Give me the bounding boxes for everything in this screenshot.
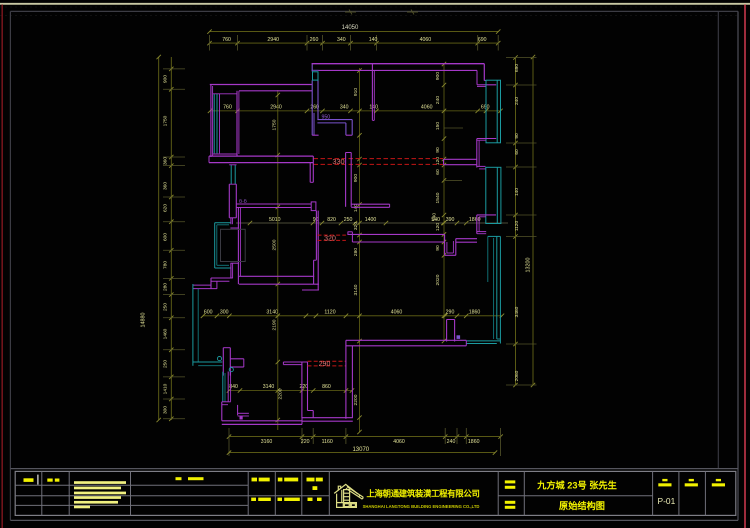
svg-text:240: 240 bbox=[447, 439, 456, 445]
svg-text:140: 140 bbox=[514, 188, 520, 196]
svg-text:3460: 3460 bbox=[514, 306, 520, 317]
svg-text:SHANGHAI LANGTONG BUILDING ENG: SHANGHAI LANGTONG BUILDING ENGINEERING C… bbox=[363, 504, 480, 509]
svg-text:上海朝通建筑装潢工程有限公司: 上海朝通建筑装潢工程有限公司 bbox=[366, 488, 479, 498]
svg-text:60: 60 bbox=[514, 149, 520, 155]
svg-text:2200: 2200 bbox=[278, 388, 284, 399]
svg-text:690: 690 bbox=[514, 64, 520, 72]
svg-text:340: 340 bbox=[340, 105, 349, 111]
svg-text:1460: 1460 bbox=[163, 328, 169, 339]
svg-text:690: 690 bbox=[478, 37, 487, 43]
svg-text:2190: 2190 bbox=[271, 319, 277, 330]
svg-text:390: 390 bbox=[446, 217, 455, 223]
svg-text:360: 360 bbox=[163, 182, 169, 190]
svg-text:280: 280 bbox=[353, 248, 359, 256]
svg-text:4060: 4060 bbox=[393, 439, 405, 445]
svg-text:90: 90 bbox=[435, 147, 441, 153]
svg-text:1860: 1860 bbox=[468, 439, 480, 445]
svg-text:290: 290 bbox=[319, 361, 331, 368]
svg-text:原始结构图: 原始结构图 bbox=[559, 500, 605, 511]
svg-text:240: 240 bbox=[514, 97, 520, 105]
svg-text:5010: 5010 bbox=[269, 217, 281, 223]
svg-text:4060: 4060 bbox=[421, 105, 433, 111]
svg-text:260: 260 bbox=[310, 37, 319, 43]
svg-text:4060: 4060 bbox=[420, 37, 432, 43]
svg-text:3140: 3140 bbox=[266, 309, 278, 315]
svg-text:1410: 1410 bbox=[163, 383, 169, 394]
svg-text:360: 360 bbox=[163, 157, 169, 165]
svg-text:3140: 3140 bbox=[353, 284, 359, 295]
svg-text:3160: 3160 bbox=[261, 439, 273, 445]
svg-text:2200: 2200 bbox=[353, 394, 359, 405]
svg-text:950: 950 bbox=[322, 115, 331, 121]
svg-text:900: 900 bbox=[353, 174, 359, 182]
svg-text:300: 300 bbox=[163, 406, 169, 414]
svg-text:900: 900 bbox=[163, 75, 169, 83]
svg-text:1750: 1750 bbox=[163, 115, 169, 126]
svg-text:150: 150 bbox=[435, 122, 441, 130]
svg-text:140: 140 bbox=[353, 204, 359, 212]
svg-text:690: 690 bbox=[481, 105, 490, 111]
svg-text:250: 250 bbox=[344, 217, 353, 223]
svg-text:13200: 13200 bbox=[526, 258, 532, 273]
svg-text:1750: 1750 bbox=[271, 119, 277, 130]
svg-text:220: 220 bbox=[301, 439, 310, 445]
svg-text:13070: 13070 bbox=[352, 447, 369, 453]
svg-text:820: 820 bbox=[327, 217, 336, 223]
svg-text:140: 140 bbox=[369, 37, 378, 43]
svg-text:290: 290 bbox=[446, 309, 455, 315]
svg-text:1400: 1400 bbox=[365, 217, 377, 223]
svg-text:220: 220 bbox=[299, 384, 308, 390]
svg-text:250: 250 bbox=[163, 303, 169, 311]
svg-text:60: 60 bbox=[435, 169, 441, 175]
svg-text:3140: 3140 bbox=[263, 384, 275, 390]
svg-text:4060: 4060 bbox=[391, 309, 403, 315]
svg-text:2060: 2060 bbox=[514, 370, 520, 381]
svg-text:780: 780 bbox=[163, 261, 169, 269]
svg-text:320: 320 bbox=[324, 236, 336, 243]
svg-text:90: 90 bbox=[435, 245, 441, 251]
svg-text:300: 300 bbox=[220, 309, 229, 315]
svg-text:910: 910 bbox=[353, 88, 359, 96]
svg-text:120: 120 bbox=[435, 223, 441, 231]
svg-text:900: 900 bbox=[435, 72, 441, 80]
svg-text:860: 860 bbox=[322, 384, 331, 390]
svg-text:14050: 14050 bbox=[342, 25, 359, 31]
svg-text:620: 620 bbox=[163, 204, 169, 212]
svg-text:600: 600 bbox=[204, 309, 213, 315]
svg-text:760: 760 bbox=[223, 105, 232, 111]
svg-text:760: 760 bbox=[222, 37, 231, 43]
svg-text:320: 320 bbox=[353, 222, 359, 230]
svg-text:330: 330 bbox=[332, 157, 344, 166]
svg-text:1860: 1860 bbox=[469, 309, 481, 315]
svg-text:2500: 2500 bbox=[271, 239, 277, 250]
svg-text:340: 340 bbox=[337, 37, 346, 43]
svg-text:2940: 2940 bbox=[267, 37, 279, 43]
svg-text:540: 540 bbox=[432, 213, 438, 221]
svg-text:240: 240 bbox=[435, 96, 441, 104]
svg-text:九方城 23号 张先生: 九方城 23号 张先生 bbox=[536, 480, 617, 491]
svg-text:2020: 2020 bbox=[435, 274, 441, 285]
svg-text:B-B: B-B bbox=[239, 198, 247, 203]
svg-text:P-01: P-01 bbox=[658, 496, 676, 506]
svg-text:2940: 2940 bbox=[270, 105, 282, 111]
svg-text:140: 140 bbox=[369, 105, 378, 111]
svg-text:1120: 1120 bbox=[514, 221, 520, 232]
svg-text:1120: 1120 bbox=[324, 309, 335, 315]
svg-text:120: 120 bbox=[435, 157, 441, 165]
svg-text:600: 600 bbox=[163, 233, 169, 241]
svg-text:1160: 1160 bbox=[322, 439, 333, 445]
svg-text:280: 280 bbox=[163, 283, 169, 291]
svg-text:1540: 1540 bbox=[435, 192, 441, 203]
svg-text:250: 250 bbox=[163, 360, 169, 368]
svg-text:90: 90 bbox=[514, 133, 520, 139]
svg-text:14880: 14880 bbox=[141, 313, 147, 328]
